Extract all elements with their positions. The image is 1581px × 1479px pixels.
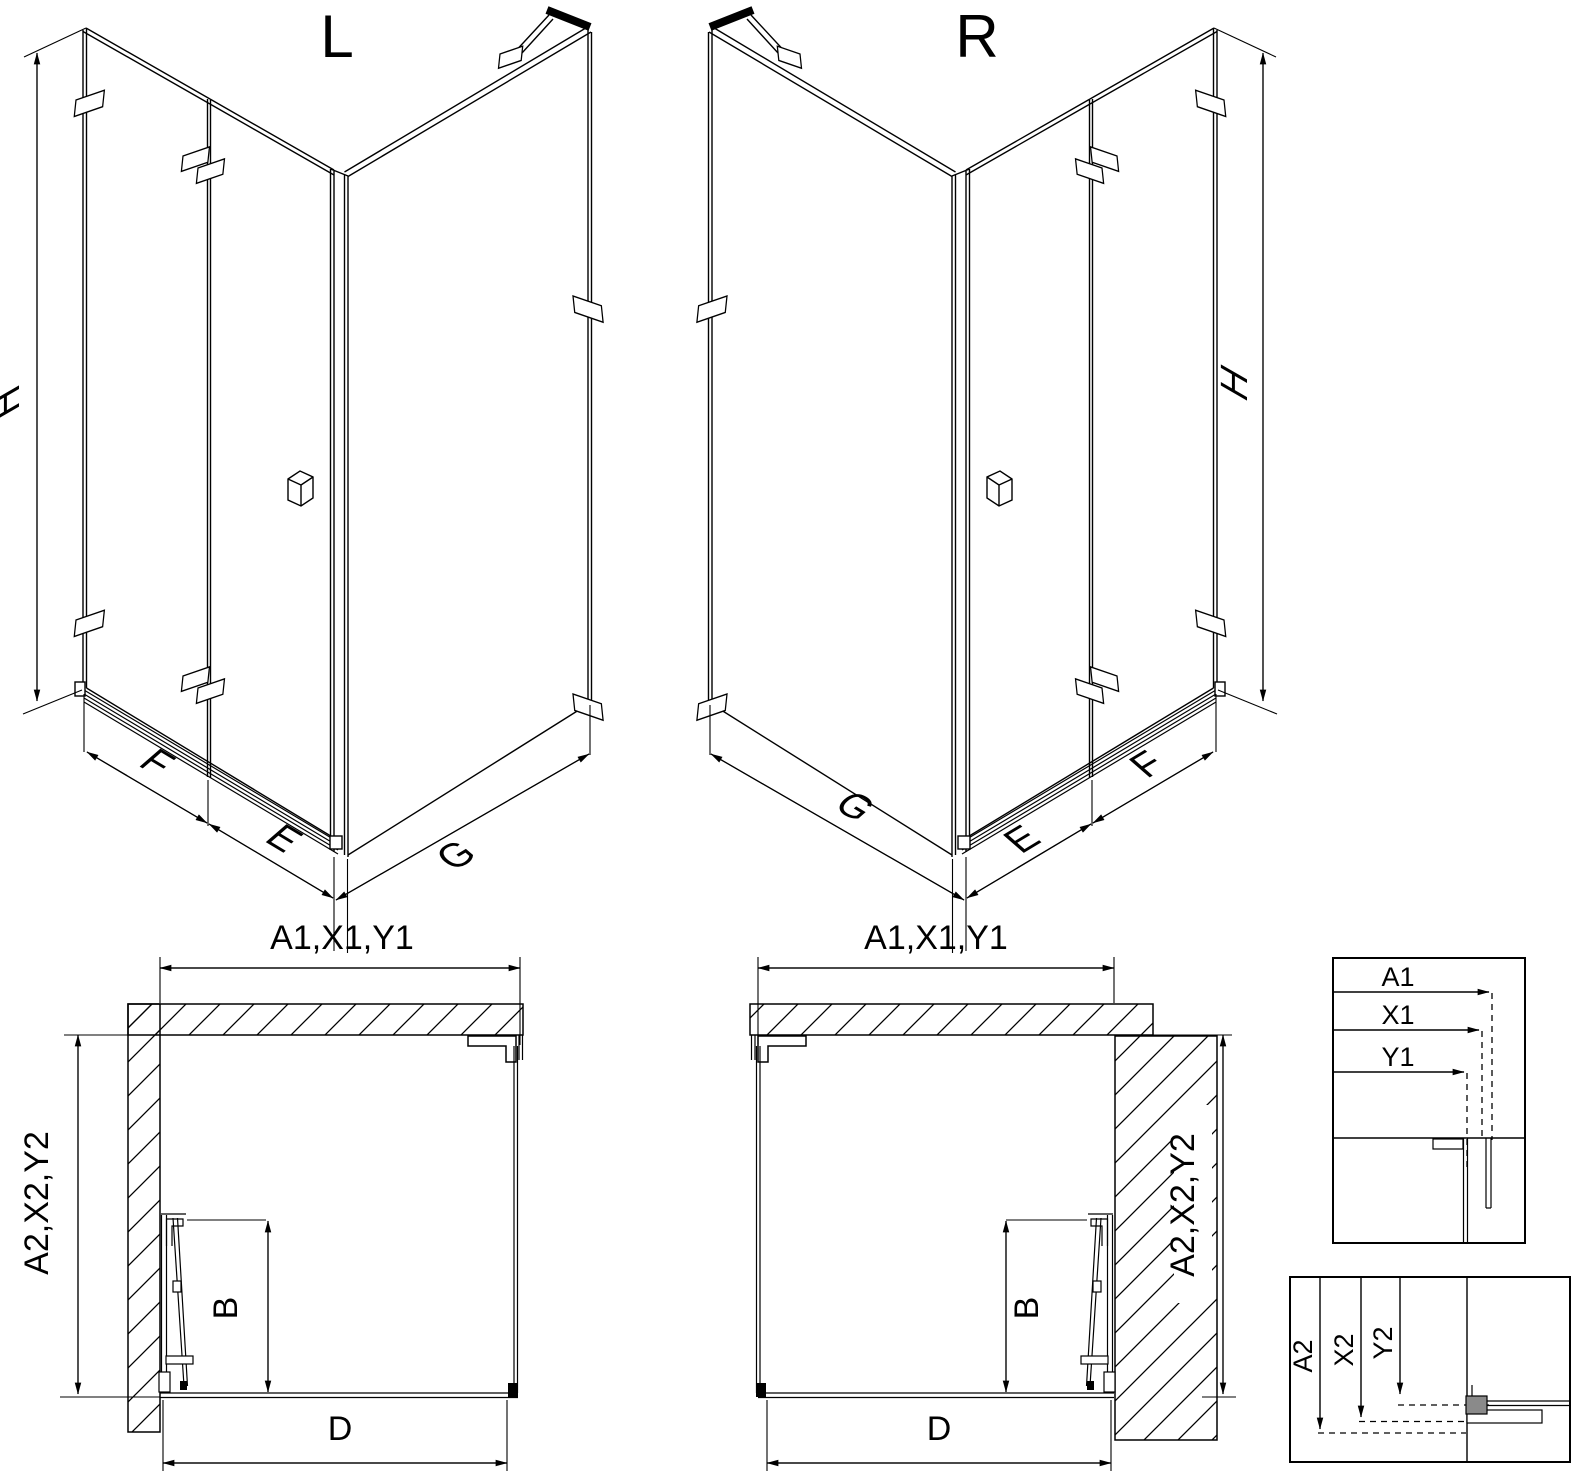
dim-label-h-right: H [1213,357,1256,409]
plan-right-width-dim-label: A1,X1,Y1 [864,919,1008,957]
plan-left-corner-bracket [468,1036,516,1062]
plan-left-depth-dim-label: A2,X2,Y2 [18,1131,56,1275]
plan-left-glass-panel [514,1046,518,1393]
plan-right-bottom-rail [758,1393,1114,1398]
plan-left-door-dim-label: B [207,1297,245,1320]
dim-label-g-left: G [427,834,486,878]
iso-view-right: R H G E F [697,3,1277,953]
plan-view-right: A1,X1,Y1 A2,X2,Y2 B D [750,919,1236,1471]
detail-width-dims: A1 X1 Y1 [1333,958,1525,1243]
iso-view-left: L H F E G [0,3,603,953]
detail-x2-label: X2 [1329,1333,1359,1366]
plan-left-entry-dim-label: D [328,1410,353,1448]
plan-left-width-dim-label: A1,X1,Y1 [270,919,414,957]
detail-a2-label: A2 [1288,1339,1318,1372]
drawing-canvas: L H F E G R H G E F [0,0,1581,1479]
plan-left-side-wall [128,1004,160,1432]
detail-x1-label: X1 [1381,1000,1414,1030]
dim-label-e-left: E [256,818,311,860]
plan-right-door-dim-label: B [1008,1297,1046,1320]
detail-depth-dims: A2 X2 Y2 [1288,1277,1570,1462]
shower-enclosure-technical-drawing: L H F E G R H G E F [0,0,1581,1479]
plan-right-corner-bracket [758,1036,806,1062]
view-right-title: R [955,3,998,70]
dim-label-g-right: G [825,785,884,829]
plan-right-depth-dim-label: A2,X2,Y2 [1164,1133,1202,1277]
detail-y1-label: Y1 [1381,1042,1414,1072]
plan-right-door [1081,1214,1115,1392]
detail-a1-label: A1 [1381,962,1414,992]
plan-left-top-wall [128,1004,523,1035]
plan-right-top-wall [750,1004,1153,1035]
plan-left-bottom-rail [160,1393,518,1398]
plan-view-left: A1,X1,Y1 A2,X2,Y2 B D [18,919,523,1471]
plan-right-entry-dim-label: D [927,1410,952,1448]
dim-label-f-right: F [1121,744,1174,785]
plan-left-door [159,1214,193,1392]
view-left-title: L [320,3,353,70]
dim-label-f-left: F [130,742,183,783]
dim-label-h-left: H [0,377,27,429]
detail-y2-label: Y2 [1368,1326,1398,1359]
plan-right-glass-panel [757,1046,761,1393]
